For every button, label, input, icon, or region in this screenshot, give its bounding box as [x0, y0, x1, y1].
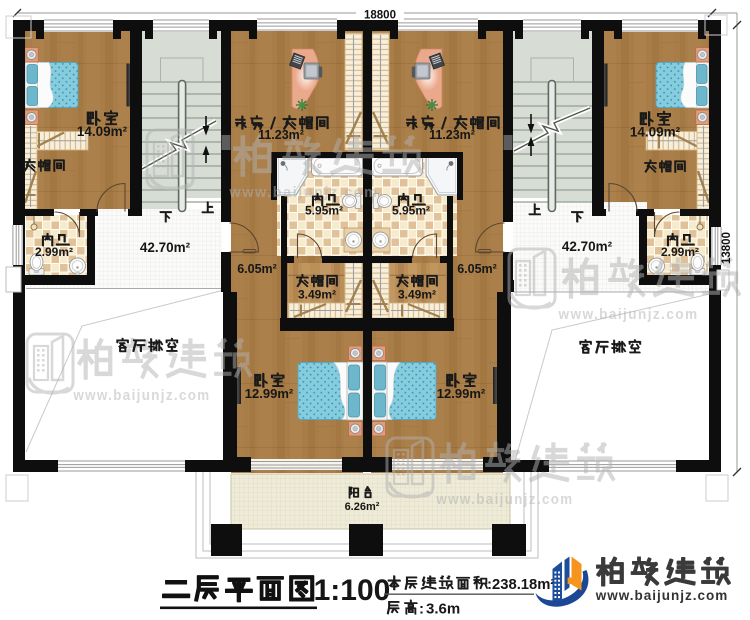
svg-text:11.23m²: 11.23m²	[429, 128, 475, 142]
svg-text:18800: 18800	[364, 10, 396, 22]
svg-text:www.baijunjz.com: www.baijunjz.com	[595, 588, 729, 603]
svg-text:13800: 13800	[721, 232, 733, 264]
svg-text:2.99m²: 2.99m²	[35, 245, 73, 259]
svg-text:42.70m²: 42.70m²	[140, 240, 191, 255]
svg-text:12.99m²: 12.99m²	[245, 386, 294, 401]
svg-text:2.99m²: 2.99m²	[661, 245, 699, 259]
svg-text:3.49m²: 3.49m²	[298, 288, 336, 302]
svg-text:3.49m²: 3.49m²	[398, 288, 436, 302]
svg-text:238.18m²: 238.18m²	[492, 577, 555, 593]
svg-text:6.05m²: 6.05m²	[237, 262, 277, 276]
svg-text:11.23m²: 11.23m²	[258, 128, 304, 142]
svg-text:14.09m²: 14.09m²	[77, 124, 128, 139]
svg-text:6.05m²: 6.05m²	[457, 262, 497, 276]
svg-text:5.95m²: 5.95m²	[392, 204, 430, 218]
svg-text:5.95m²: 5.95m²	[305, 204, 343, 218]
svg-text::: :	[419, 601, 424, 618]
svg-text:6.26m²: 6.26m²	[345, 501, 380, 513]
svg-text:3.6m: 3.6m	[426, 601, 460, 618]
svg-text:14.09m²: 14.09m²	[630, 125, 681, 140]
svg-text:12.99m²: 12.99m²	[437, 386, 486, 401]
svg-text:1:100: 1:100	[314, 574, 391, 607]
svg-text:42.70m²: 42.70m²	[562, 239, 613, 254]
